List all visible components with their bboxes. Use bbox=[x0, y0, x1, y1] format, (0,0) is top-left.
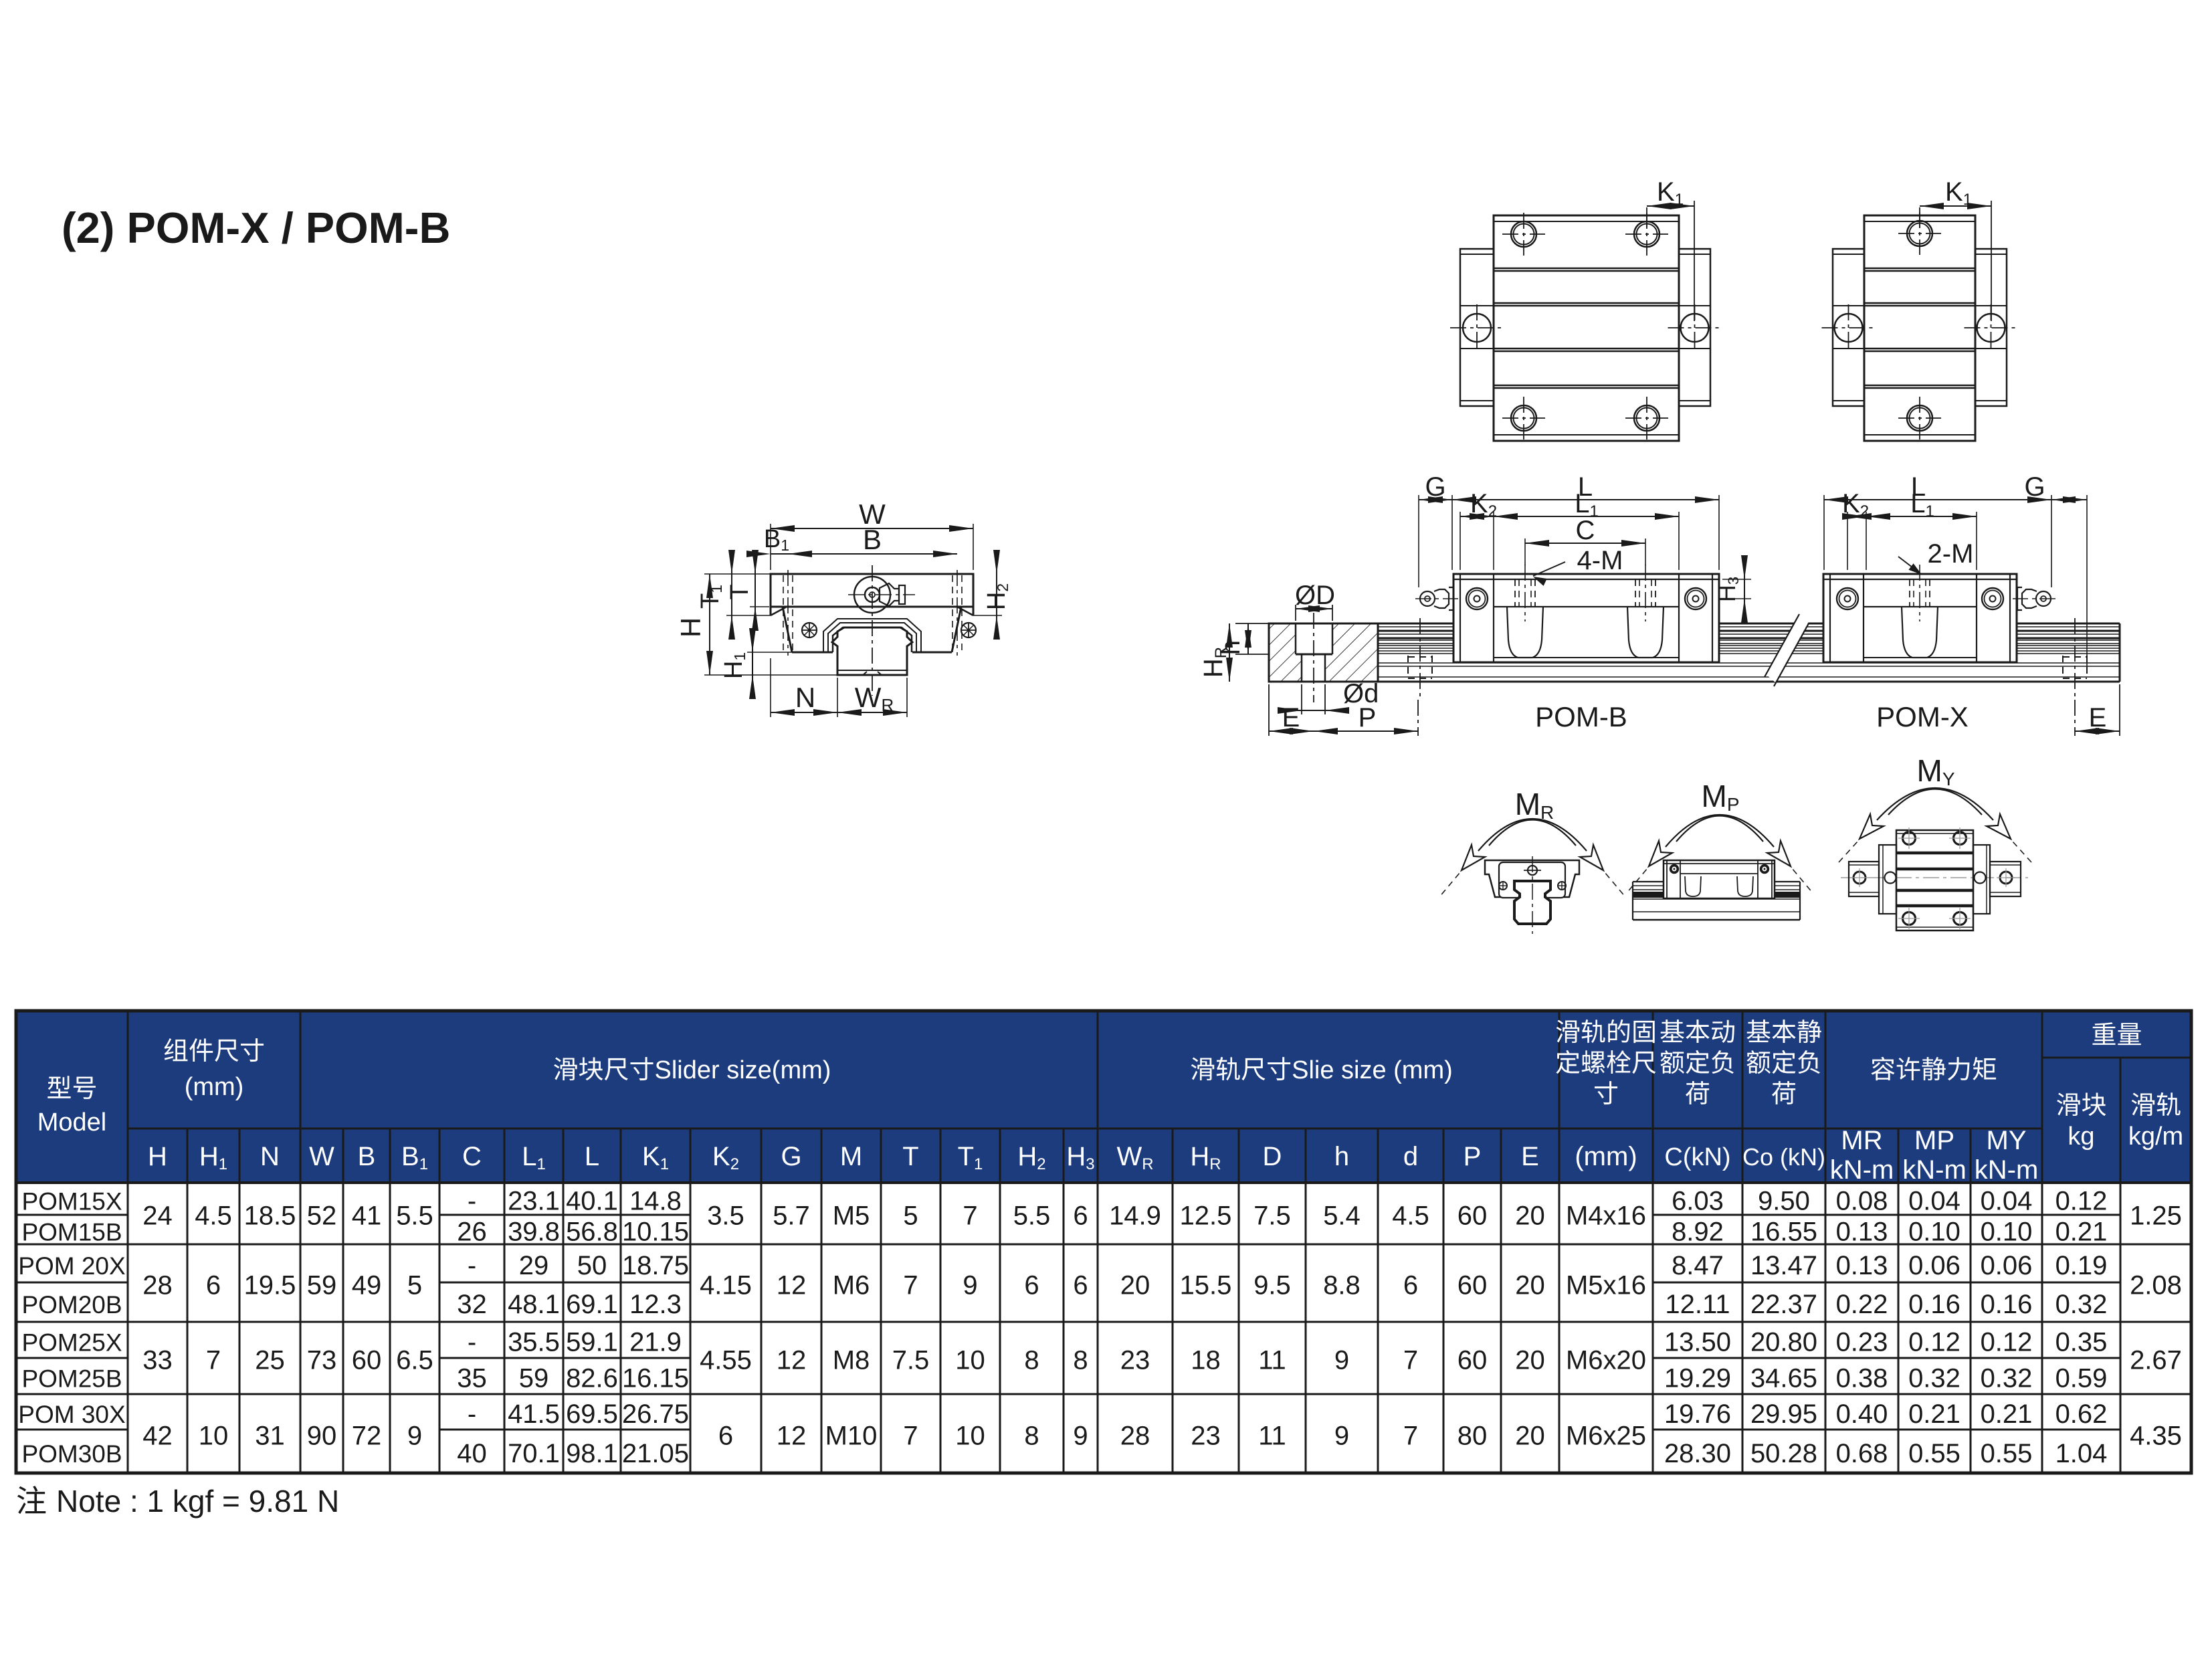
svg-text:MP: MP bbox=[1914, 1126, 1954, 1155]
svg-text:7: 7 bbox=[903, 1421, 918, 1450]
svg-text:M6x20: M6x20 bbox=[1566, 1345, 1646, 1375]
svg-text:40: 40 bbox=[457, 1439, 487, 1468]
svg-text:C: C bbox=[462, 1142, 482, 1171]
svg-text:5: 5 bbox=[903, 1201, 918, 1230]
svg-text:MP: MP bbox=[1702, 779, 1740, 815]
svg-text:5.7: 5.7 bbox=[773, 1201, 810, 1230]
svg-text:21.9: 21.9 bbox=[629, 1327, 682, 1357]
svg-text:60: 60 bbox=[1457, 1270, 1488, 1300]
svg-text:9: 9 bbox=[407, 1421, 422, 1450]
svg-text:0.35: 0.35 bbox=[2055, 1327, 2108, 1357]
svg-text:7: 7 bbox=[963, 1201, 977, 1230]
svg-text:H2: H2 bbox=[983, 583, 1011, 610]
svg-text:18.75: 18.75 bbox=[622, 1251, 689, 1280]
svg-text:0.13: 0.13 bbox=[1836, 1217, 1888, 1246]
svg-text:0.55: 0.55 bbox=[1981, 1439, 2033, 1468]
svg-text:7: 7 bbox=[903, 1270, 918, 1300]
svg-text:6: 6 bbox=[1073, 1270, 1088, 1300]
svg-text:kN-m: kN-m bbox=[1902, 1155, 1967, 1185]
svg-text:0.21: 0.21 bbox=[1981, 1399, 2033, 1429]
svg-text:h: h bbox=[1334, 1142, 1349, 1171]
svg-text:9: 9 bbox=[1334, 1421, 1349, 1450]
svg-text:2-M: 2-M bbox=[1928, 539, 1974, 569]
svg-text:4-M: 4-M bbox=[1577, 546, 1623, 575]
svg-text:29.95: 29.95 bbox=[1750, 1399, 1817, 1429]
svg-text:G: G bbox=[2024, 472, 2045, 502]
svg-text:M10: M10 bbox=[825, 1421, 878, 1450]
svg-text:80: 80 bbox=[1457, 1421, 1488, 1450]
svg-text:MR: MR bbox=[1841, 1126, 1882, 1155]
svg-text:6: 6 bbox=[1024, 1270, 1039, 1300]
svg-text:P: P bbox=[1359, 703, 1377, 733]
svg-text:7: 7 bbox=[206, 1345, 221, 1375]
svg-text:20: 20 bbox=[1515, 1201, 1545, 1230]
svg-text:M6: M6 bbox=[833, 1270, 870, 1300]
svg-text:8.92: 8.92 bbox=[1672, 1217, 1724, 1246]
svg-text:0.22: 0.22 bbox=[1836, 1290, 1888, 1319]
svg-text:K2: K2 bbox=[1842, 489, 1869, 520]
svg-text:14.9: 14.9 bbox=[1109, 1201, 1161, 1230]
svg-text:0.04: 0.04 bbox=[1908, 1186, 1960, 1215]
svg-text:4.55: 4.55 bbox=[700, 1345, 752, 1375]
svg-text:5.4: 5.4 bbox=[1323, 1201, 1361, 1230]
svg-text:B: B bbox=[863, 524, 882, 555]
svg-text:69.5: 69.5 bbox=[566, 1399, 618, 1429]
svg-text:K1: K1 bbox=[1945, 177, 1972, 209]
svg-text:7: 7 bbox=[1403, 1421, 1418, 1450]
svg-text:98.1: 98.1 bbox=[566, 1439, 618, 1468]
svg-text:0.12: 0.12 bbox=[1908, 1327, 1960, 1357]
svg-text:M5: M5 bbox=[833, 1201, 870, 1230]
svg-text:POM 20X: POM 20X bbox=[18, 1252, 125, 1280]
svg-text:9: 9 bbox=[1334, 1345, 1349, 1375]
svg-text:M5x16: M5x16 bbox=[1566, 1270, 1646, 1300]
svg-text:1.25: 1.25 bbox=[2130, 1201, 2182, 1230]
svg-text:72: 72 bbox=[352, 1421, 382, 1450]
svg-text:4.5: 4.5 bbox=[195, 1201, 232, 1230]
svg-text:26.75: 26.75 bbox=[622, 1399, 689, 1429]
svg-text:kg/m: kg/m bbox=[2128, 1123, 2183, 1151]
svg-text:0.21: 0.21 bbox=[1908, 1399, 1960, 1429]
svg-text:11: 11 bbox=[1258, 1421, 1286, 1450]
svg-text:6.5: 6.5 bbox=[396, 1345, 433, 1375]
svg-text:16.15: 16.15 bbox=[622, 1363, 689, 1393]
svg-text:0.68: 0.68 bbox=[1836, 1439, 1888, 1468]
svg-text:59.1: 59.1 bbox=[566, 1327, 618, 1357]
svg-text:L: L bbox=[585, 1142, 599, 1171]
svg-text:0.32: 0.32 bbox=[1908, 1363, 1960, 1393]
svg-text:6: 6 bbox=[206, 1270, 221, 1300]
svg-text:26: 26 bbox=[457, 1217, 487, 1246]
svg-text:3.5: 3.5 bbox=[707, 1201, 744, 1230]
svg-text:4.5: 4.5 bbox=[1392, 1201, 1429, 1230]
svg-text:d: d bbox=[1403, 1142, 1418, 1171]
svg-text:POM15B: POM15B bbox=[21, 1218, 122, 1246]
svg-text:9.5: 9.5 bbox=[1253, 1270, 1291, 1300]
svg-text:N: N bbox=[260, 1142, 280, 1171]
svg-text:28: 28 bbox=[142, 1270, 173, 1300]
svg-text:W: W bbox=[309, 1142, 334, 1171]
svg-text:Note : 1 kgf = 9.81 N: Note : 1 kgf = 9.81 N bbox=[56, 1484, 339, 1519]
svg-text:32: 32 bbox=[457, 1290, 487, 1319]
svg-text:E: E bbox=[2089, 703, 2107, 733]
svg-text:11: 11 bbox=[1258, 1345, 1286, 1375]
svg-text:0.19: 0.19 bbox=[2055, 1251, 2108, 1280]
svg-text:(mm): (mm) bbox=[1575, 1142, 1637, 1171]
svg-text:WR: WR bbox=[855, 682, 894, 715]
svg-text:39.8: 39.8 bbox=[508, 1217, 560, 1246]
svg-text:25: 25 bbox=[255, 1345, 285, 1375]
svg-text:12: 12 bbox=[777, 1270, 807, 1300]
svg-text:K2: K2 bbox=[1470, 489, 1497, 520]
svg-text:(2) POM-X / POM-B: (2) POM-X / POM-B bbox=[62, 203, 450, 252]
svg-text:C: C bbox=[1576, 516, 1595, 545]
svg-text:kg: kg bbox=[2068, 1123, 2094, 1151]
svg-text:14.8: 14.8 bbox=[629, 1186, 682, 1215]
svg-text:0.55: 0.55 bbox=[1908, 1439, 1960, 1468]
svg-text:N: N bbox=[795, 682, 815, 713]
svg-text:0.12: 0.12 bbox=[1981, 1327, 2033, 1357]
svg-text:35.5: 35.5 bbox=[508, 1327, 560, 1357]
svg-text:12: 12 bbox=[777, 1345, 807, 1375]
svg-text:49: 49 bbox=[352, 1270, 382, 1300]
svg-text:13.47: 13.47 bbox=[1750, 1251, 1817, 1280]
svg-text:HR: HR bbox=[1199, 647, 1230, 678]
svg-text:19.29: 19.29 bbox=[1664, 1363, 1731, 1393]
svg-text:G: G bbox=[1425, 472, 1445, 502]
svg-text:22.37: 22.37 bbox=[1750, 1290, 1817, 1319]
svg-text:T: T bbox=[902, 1142, 918, 1171]
svg-text:H: H bbox=[148, 1142, 167, 1171]
svg-text:59: 59 bbox=[307, 1270, 337, 1300]
svg-text:MR: MR bbox=[1515, 787, 1554, 823]
svg-text:0.16: 0.16 bbox=[1908, 1290, 1960, 1319]
svg-text:-: - bbox=[468, 1251, 476, 1280]
svg-text:9.50: 9.50 bbox=[1758, 1186, 1810, 1215]
svg-text:-: - bbox=[468, 1327, 476, 1357]
svg-text:0.13: 0.13 bbox=[1836, 1251, 1888, 1280]
svg-text:60: 60 bbox=[1457, 1201, 1488, 1230]
svg-text:MY: MY bbox=[1987, 1126, 2027, 1155]
svg-text:60: 60 bbox=[1457, 1345, 1488, 1375]
svg-text:POM-X: POM-X bbox=[1876, 701, 1969, 733]
svg-text:8.47: 8.47 bbox=[1672, 1251, 1724, 1280]
svg-text:POM-B: POM-B bbox=[1535, 701, 1627, 733]
svg-text:POM 30X: POM 30X bbox=[18, 1401, 125, 1428]
svg-text:18: 18 bbox=[1191, 1345, 1221, 1375]
svg-text:ØD: ØD bbox=[1295, 581, 1335, 610]
svg-text:D: D bbox=[1263, 1142, 1282, 1171]
svg-text:M: M bbox=[840, 1142, 862, 1171]
svg-text:9: 9 bbox=[963, 1270, 977, 1300]
svg-text:20: 20 bbox=[1120, 1270, 1150, 1300]
svg-text:2.67: 2.67 bbox=[2130, 1345, 2182, 1375]
svg-text:P: P bbox=[1464, 1142, 1482, 1171]
svg-text:12.11: 12.11 bbox=[1665, 1290, 1730, 1319]
svg-text:19.76: 19.76 bbox=[1664, 1399, 1731, 1429]
svg-text:8: 8 bbox=[1024, 1421, 1039, 1450]
svg-text:15.5: 15.5 bbox=[1180, 1270, 1232, 1300]
svg-text:6: 6 bbox=[1073, 1201, 1088, 1230]
svg-text:29: 29 bbox=[519, 1251, 549, 1280]
svg-text:41: 41 bbox=[352, 1201, 382, 1230]
svg-text:1.04: 1.04 bbox=[2055, 1439, 2108, 1468]
svg-text:70.1: 70.1 bbox=[508, 1439, 560, 1468]
svg-text:kN-m: kN-m bbox=[1830, 1155, 1894, 1185]
svg-text:16.55: 16.55 bbox=[1750, 1217, 1817, 1246]
svg-text:13.50: 13.50 bbox=[1664, 1327, 1731, 1357]
svg-text:4.15: 4.15 bbox=[700, 1270, 752, 1300]
svg-text:0.10: 0.10 bbox=[1981, 1217, 2033, 1246]
svg-text:69.1: 69.1 bbox=[566, 1290, 618, 1319]
svg-text:23: 23 bbox=[1120, 1345, 1150, 1375]
svg-text:48.1: 48.1 bbox=[508, 1290, 560, 1319]
svg-text:0.40: 0.40 bbox=[1836, 1399, 1888, 1429]
svg-text:T: T bbox=[726, 584, 754, 599]
svg-text:0.32: 0.32 bbox=[2055, 1290, 2108, 1319]
svg-text:7: 7 bbox=[1403, 1345, 1418, 1375]
svg-text:0.62: 0.62 bbox=[2055, 1399, 2108, 1429]
svg-text:10: 10 bbox=[955, 1421, 985, 1450]
svg-text:19.5: 19.5 bbox=[244, 1270, 296, 1300]
svg-text:0.32: 0.32 bbox=[1981, 1363, 2033, 1393]
svg-text:-: - bbox=[468, 1399, 476, 1429]
svg-text:24: 24 bbox=[142, 1201, 173, 1230]
svg-text:6.03: 6.03 bbox=[1672, 1186, 1724, 1215]
svg-text:9: 9 bbox=[1073, 1421, 1088, 1450]
svg-text:8.8: 8.8 bbox=[1323, 1270, 1361, 1300]
svg-text:6: 6 bbox=[718, 1421, 733, 1450]
svg-text:34.65: 34.65 bbox=[1750, 1363, 1817, 1393]
svg-text:0.08: 0.08 bbox=[1836, 1186, 1888, 1215]
svg-text:H1: H1 bbox=[720, 652, 748, 679]
svg-text:8: 8 bbox=[1073, 1345, 1088, 1375]
svg-text:E: E bbox=[1521, 1142, 1539, 1171]
svg-text:50.28: 50.28 bbox=[1750, 1439, 1817, 1468]
svg-text:5: 5 bbox=[407, 1270, 422, 1300]
svg-text:T1: T1 bbox=[696, 585, 725, 609]
svg-text:10.15: 10.15 bbox=[622, 1217, 689, 1246]
svg-text:0.06: 0.06 bbox=[1908, 1251, 1960, 1280]
svg-text:42: 42 bbox=[142, 1421, 173, 1450]
svg-text:31: 31 bbox=[255, 1421, 285, 1450]
svg-text:12.3: 12.3 bbox=[629, 1290, 682, 1319]
svg-text:-: - bbox=[468, 1186, 476, 1215]
svg-text:0.16: 0.16 bbox=[1981, 1290, 2033, 1319]
svg-text:kN-m: kN-m bbox=[1975, 1155, 2039, 1185]
svg-text:10: 10 bbox=[955, 1345, 985, 1375]
svg-text:0.06: 0.06 bbox=[1981, 1251, 2033, 1280]
svg-text:10: 10 bbox=[199, 1421, 229, 1450]
svg-text:E: E bbox=[1282, 703, 1300, 733]
svg-text:MY: MY bbox=[1917, 753, 1955, 789]
svg-text:H: H bbox=[675, 617, 706, 638]
svg-text:8: 8 bbox=[1024, 1345, 1039, 1375]
svg-text:33: 33 bbox=[142, 1345, 173, 1375]
svg-text:41.5: 41.5 bbox=[508, 1399, 560, 1429]
svg-text:23.1: 23.1 bbox=[508, 1186, 560, 1215]
svg-text:0.10: 0.10 bbox=[1908, 1217, 1960, 1246]
svg-text:M8: M8 bbox=[833, 1345, 870, 1375]
svg-text:POM15X: POM15X bbox=[21, 1187, 122, 1215]
svg-text:20: 20 bbox=[1515, 1270, 1545, 1300]
svg-text:73: 73 bbox=[307, 1345, 337, 1375]
svg-text:60: 60 bbox=[352, 1345, 382, 1375]
svg-text:82.6: 82.6 bbox=[566, 1363, 618, 1393]
svg-text:18.5: 18.5 bbox=[244, 1201, 296, 1230]
svg-text:(mm): (mm) bbox=[185, 1073, 244, 1101]
svg-text:20: 20 bbox=[1515, 1421, 1545, 1450]
svg-text:21.05: 21.05 bbox=[622, 1439, 689, 1468]
svg-text:POM20B: POM20B bbox=[21, 1291, 122, 1319]
svg-text:0.21: 0.21 bbox=[2055, 1217, 2108, 1246]
svg-text:K1: K1 bbox=[1657, 177, 1684, 209]
svg-text:5.5: 5.5 bbox=[396, 1201, 433, 1230]
svg-text:35: 35 bbox=[457, 1363, 487, 1393]
svg-text:B: B bbox=[358, 1142, 376, 1171]
svg-text:12: 12 bbox=[777, 1421, 807, 1450]
svg-text:C(kN): C(kN) bbox=[1664, 1143, 1730, 1171]
svg-text:7.5: 7.5 bbox=[892, 1345, 930, 1375]
svg-text:12.5: 12.5 bbox=[1180, 1201, 1232, 1230]
svg-text:4.35: 4.35 bbox=[2130, 1421, 2182, 1450]
svg-text:90: 90 bbox=[307, 1421, 337, 1450]
svg-text:50: 50 bbox=[577, 1251, 607, 1280]
svg-text:59: 59 bbox=[519, 1363, 549, 1393]
svg-text:6: 6 bbox=[1403, 1270, 1418, 1300]
svg-text:0.04: 0.04 bbox=[1981, 1186, 2033, 1215]
svg-text:0.23: 0.23 bbox=[1836, 1327, 1888, 1357]
svg-text:0.38: 0.38 bbox=[1836, 1363, 1888, 1393]
svg-text:7.5: 7.5 bbox=[1253, 1201, 1291, 1230]
svg-text:POM25X: POM25X bbox=[21, 1329, 122, 1356]
svg-text:M6x25: M6x25 bbox=[1566, 1421, 1646, 1450]
svg-text:40.1: 40.1 bbox=[566, 1186, 618, 1215]
svg-text:56.8: 56.8 bbox=[566, 1217, 618, 1246]
svg-text:2.08: 2.08 bbox=[2130, 1270, 2182, 1300]
svg-text:0.59: 0.59 bbox=[2055, 1363, 2108, 1393]
svg-text:Slie size (mm): Slie size (mm) bbox=[1292, 1056, 1453, 1084]
svg-text:Model: Model bbox=[37, 1108, 107, 1137]
svg-text:G: G bbox=[781, 1142, 801, 1171]
svg-text:Co (kN): Co (kN) bbox=[1742, 1143, 1825, 1171]
svg-text:28.30: 28.30 bbox=[1664, 1439, 1731, 1468]
svg-text:M4x16: M4x16 bbox=[1566, 1201, 1646, 1230]
svg-text:Slider size(mm): Slider size(mm) bbox=[655, 1056, 831, 1084]
svg-text:POM30B: POM30B bbox=[21, 1440, 122, 1468]
svg-text:28: 28 bbox=[1120, 1421, 1150, 1450]
svg-text:0.12: 0.12 bbox=[2055, 1186, 2108, 1215]
svg-text:POM25B: POM25B bbox=[21, 1365, 122, 1392]
svg-text:20: 20 bbox=[1515, 1345, 1545, 1375]
svg-text:20.80: 20.80 bbox=[1750, 1327, 1817, 1357]
svg-text:5.5: 5.5 bbox=[1013, 1201, 1051, 1230]
svg-text:23: 23 bbox=[1191, 1421, 1221, 1450]
svg-text:L1: L1 bbox=[1910, 489, 1934, 520]
svg-text:52: 52 bbox=[307, 1201, 337, 1230]
